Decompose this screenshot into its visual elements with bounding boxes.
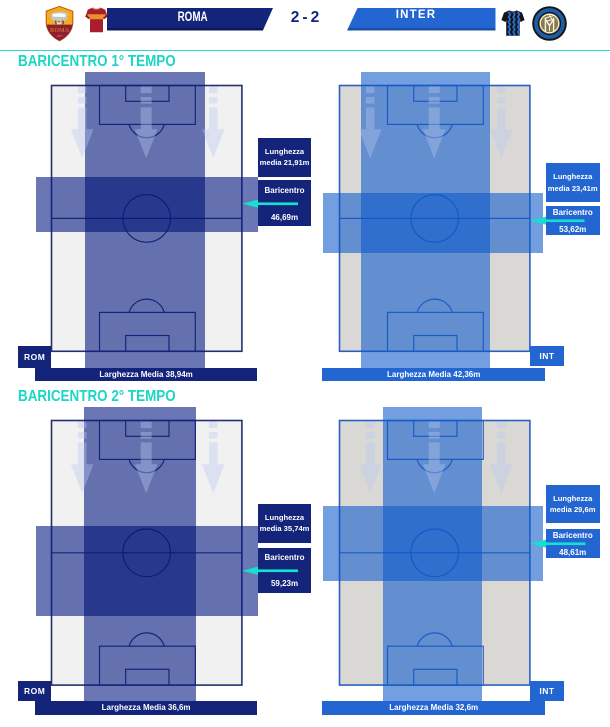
- svg-text:1927: 1927: [56, 34, 63, 38]
